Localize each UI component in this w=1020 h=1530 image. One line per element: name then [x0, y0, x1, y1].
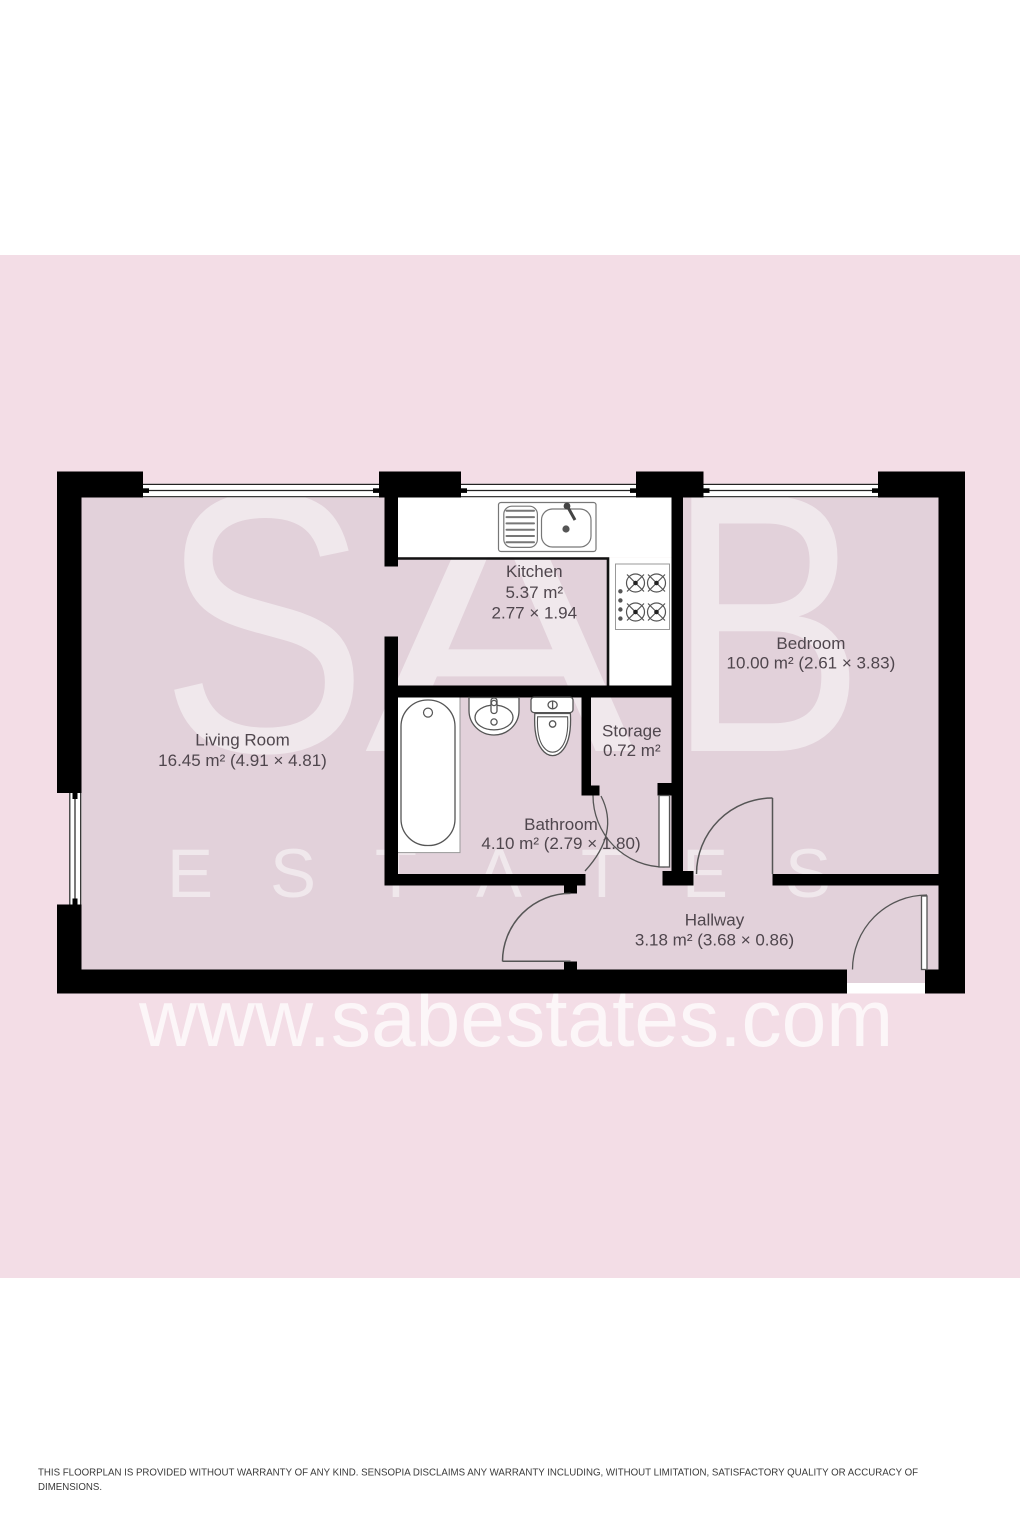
svg-text:2.77 × 1.94: 2.77 × 1.94 [492, 603, 578, 622]
svg-text:Storage: Storage [602, 722, 662, 741]
svg-text:16.45 m² (4.91 × 4.81): 16.45 m² (4.91 × 4.81) [158, 751, 327, 770]
svg-text:Kitchen: Kitchen [506, 562, 563, 581]
svg-text:3.18 m² (3.68 × 0.86): 3.18 m² (3.68 × 0.86) [635, 931, 794, 950]
svg-text:Bedroom: Bedroom [776, 634, 845, 653]
svg-text:10.00 m² (2.61 × 3.83): 10.00 m² (2.61 × 3.83) [727, 654, 896, 673]
svg-text:Hallway: Hallway [685, 910, 745, 929]
svg-text:Bathroom: Bathroom [524, 815, 598, 834]
svg-text:S: S [785, 835, 831, 912]
svg-text:E: E [167, 835, 213, 912]
svg-text:S: S [270, 835, 316, 912]
svg-text:0.72 m²: 0.72 m² [603, 741, 661, 760]
svg-text:5.37 m²: 5.37 m² [505, 583, 563, 602]
svg-text:THIS FLOORPLAN IS PROVIDED WIT: THIS FLOORPLAN IS PROVIDED WITHOUT WARRA… [38, 1468, 918, 1479]
svg-text:Living Room: Living Room [195, 731, 290, 750]
svg-text:DIMENSIONS.: DIMENSIONS. [38, 1482, 102, 1493]
svg-text:4.10 m² (2.79 × 1.80): 4.10 m² (2.79 × 1.80) [481, 834, 640, 853]
